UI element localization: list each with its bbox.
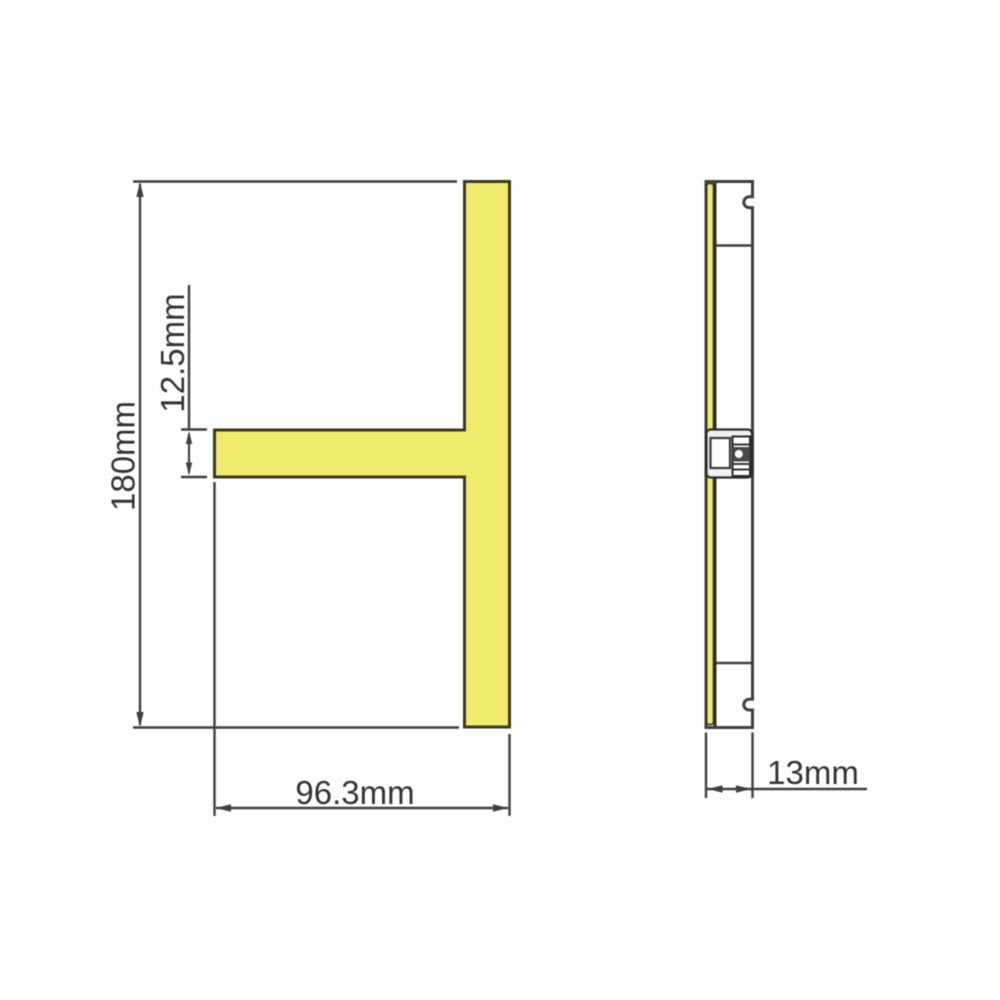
svg-text:180mm: 180mm — [105, 401, 142, 511]
svg-text:13mm: 13mm — [767, 754, 859, 791]
svg-text:12.5mm: 12.5mm — [154, 293, 191, 412]
svg-text:96.3mm: 96.3mm — [295, 774, 414, 811]
